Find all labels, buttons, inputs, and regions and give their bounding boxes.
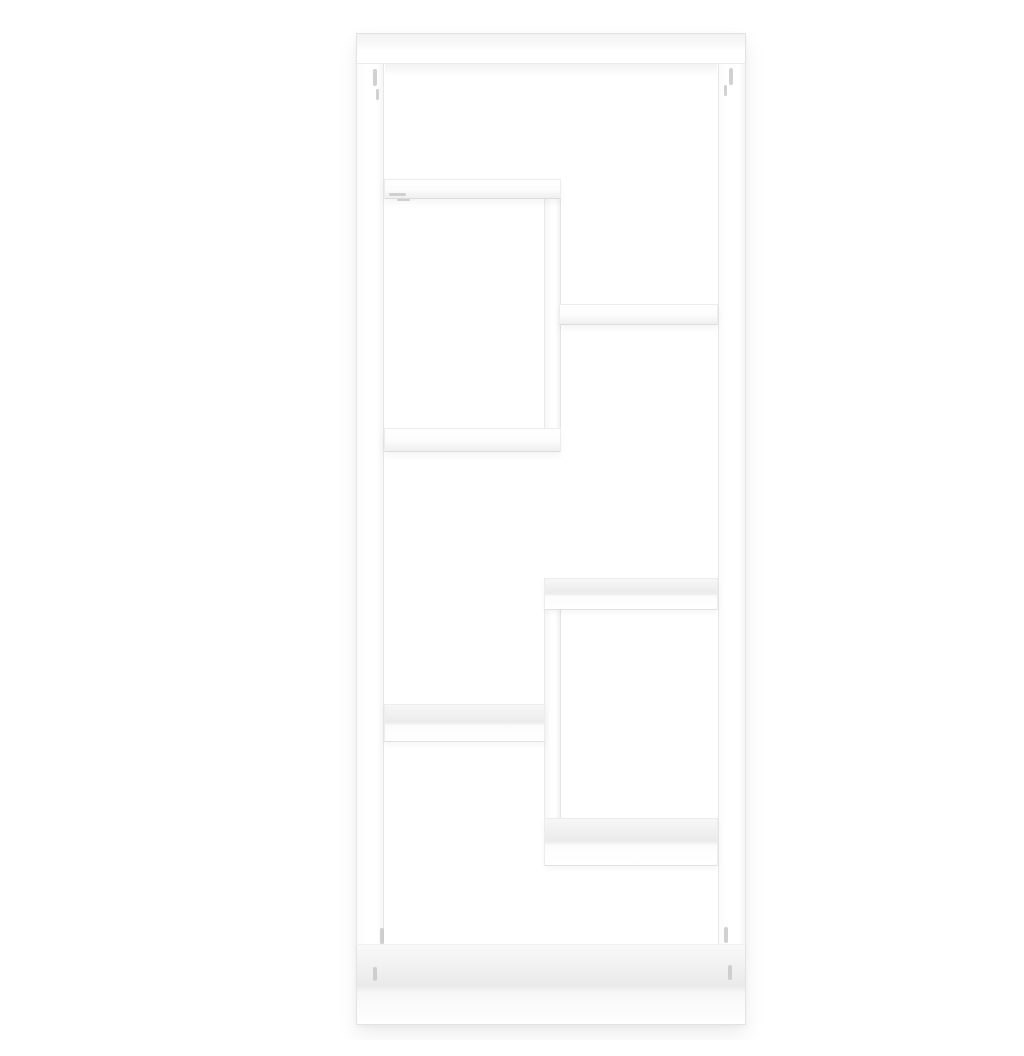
divider-lower [544,606,561,822]
product-photo: Front view of a white geometric wall-mou… [40,16,1024,1040]
shelf-top-left [384,179,561,199]
fitting-mark [373,967,377,981]
fitting-mark [728,965,732,980]
fitting-mark [724,927,728,943]
shelf-middle-left [384,428,561,452]
wall-shelf [40,16,1024,1040]
shelf-middle-right [544,578,718,610]
frame-right-panel [718,33,746,1025]
frame-bottom-panel [356,944,746,1025]
fitting-mark [373,69,377,86]
fitting-mark [397,199,410,201]
shelf-lower-left [384,704,545,742]
fitting-mark [729,68,733,85]
fitting-mark [376,89,379,100]
shelf-upper-right [559,304,718,325]
fitting-mark [389,193,406,196]
frame-left-panel [356,33,384,1025]
frame-top-panel [356,33,746,64]
top-panel-inner-shadow [385,64,717,77]
fitting-mark [724,85,727,96]
fitting-mark [380,928,384,944]
shelf-bottom-right [544,818,718,866]
